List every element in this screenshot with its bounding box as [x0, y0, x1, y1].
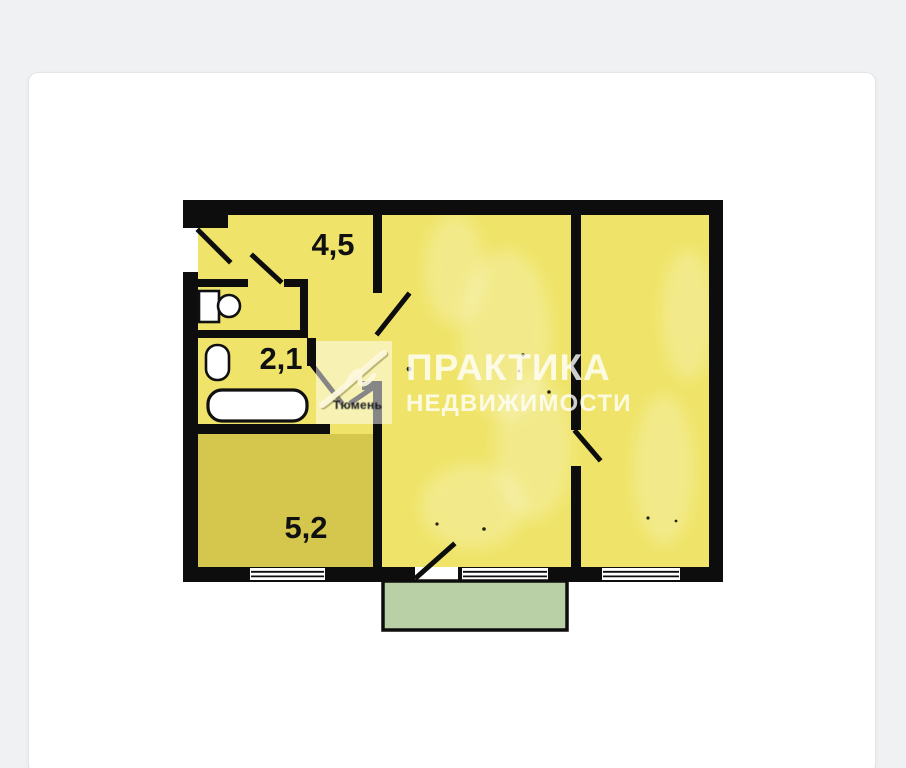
toilet-tank — [199, 291, 219, 322]
page-background: 4,5 2,1 5,2 Тюмень ПРАКТИКА НЕДВИЖИМОСТИ — [0, 0, 906, 768]
sink-icon — [206, 345, 229, 380]
corridor-wall-lower — [373, 385, 382, 567]
corridor-wall-upper — [373, 215, 382, 293]
bathroom-wall-right — [307, 338, 316, 366]
rooms-divider-wall-upper — [571, 215, 581, 430]
outer-wall-right — [709, 200, 723, 582]
entrance-corner-block — [183, 200, 228, 228]
kitchen-window — [250, 568, 325, 580]
floor-plan: 4,5 2,1 5,2 — [0, 0, 906, 768]
balcony — [383, 581, 567, 630]
living-room-window — [462, 568, 548, 580]
rooms-divider-wall-lower — [571, 466, 581, 567]
right-room-window — [602, 568, 680, 580]
bathtub-icon — [208, 390, 307, 421]
toilet-bowl — [218, 295, 240, 317]
outer-wall-left — [183, 272, 198, 582]
toilet-wall-top-left — [198, 279, 248, 287]
outer-wall-top — [183, 200, 723, 215]
bathroom-area-label: 2,1 — [259, 341, 302, 376]
kitchen-floor — [198, 434, 382, 567]
hallway-area-label: 4,5 — [311, 227, 354, 262]
kitchen-area-label: 5,2 — [284, 510, 327, 545]
toilet-wall-right — [300, 279, 308, 338]
toilet-wall-bottom — [198, 330, 308, 338]
kitchen-wall-top — [198, 424, 330, 434]
